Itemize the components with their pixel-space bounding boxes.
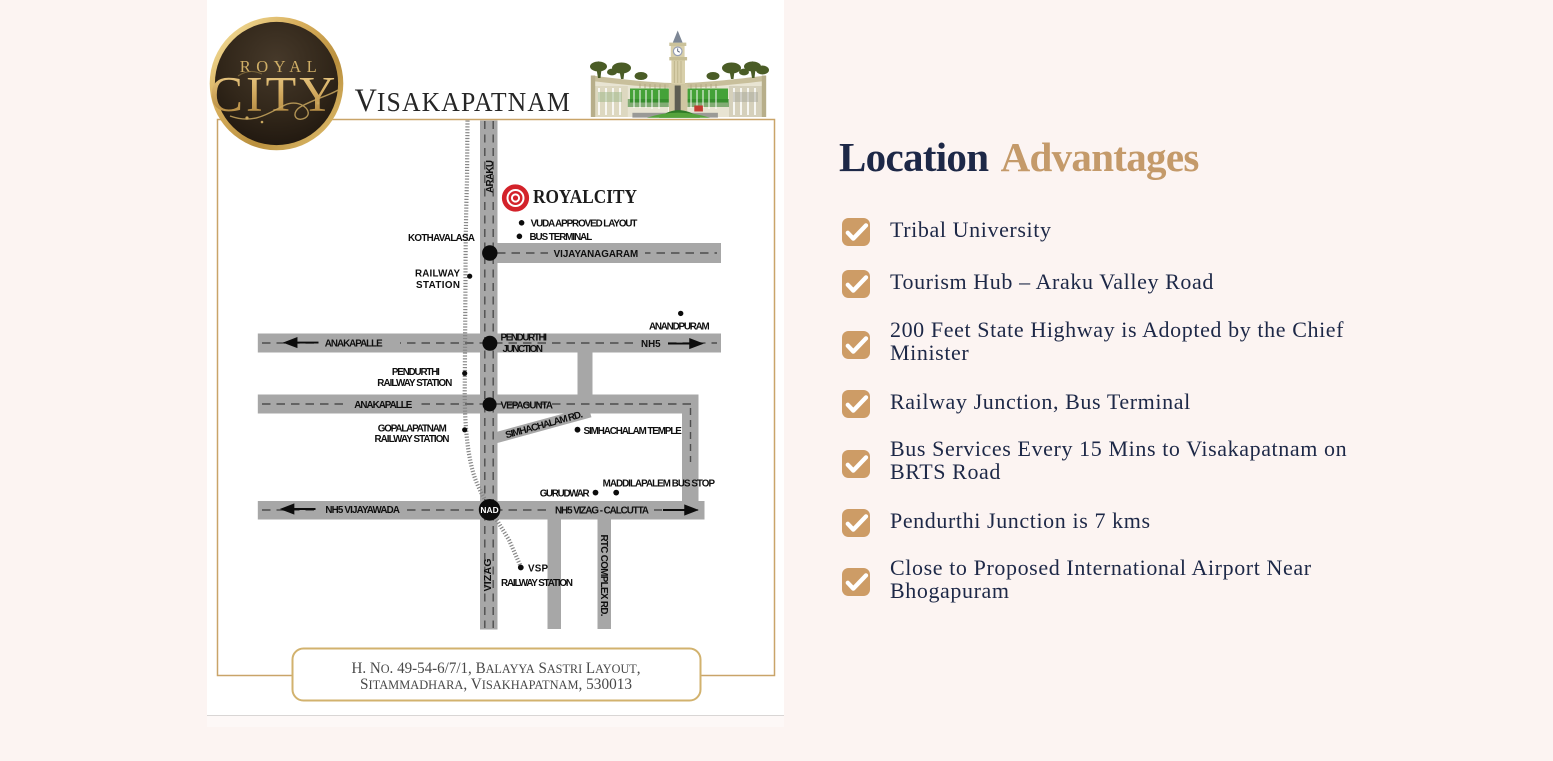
svg-text:VUDA APPROVED LAYOUT: VUDA APPROVED LAYOUT: [531, 219, 638, 230]
svg-text:H. NO. 49-54-6/7/1, BALAYYA SA: H. NO. 49-54-6/7/1, BALAYYA SASTRI LAYOU…: [352, 660, 641, 677]
svg-text:ANAKAPALLE: ANAKAPALLE: [325, 339, 383, 350]
svg-text:ANAKAPALLE: ANAKAPALLE: [354, 400, 412, 411]
svg-text:SIMHACHALAM TEMPLE: SIMHACHALAM TEMPLE: [584, 426, 683, 437]
svg-text:NH5 VIZAG - CALCUTTA: NH5 VIZAG - CALCUTTA: [555, 506, 649, 517]
svg-text:VEPAGUNTA: VEPAGUNTA: [501, 401, 554, 412]
svg-text:ANANDPURAM: ANANDPURAM: [649, 322, 710, 333]
svg-text:RAILWAY STATION: RAILWAY STATION: [501, 578, 573, 589]
svg-text:ROYALCITY: ROYALCITY: [533, 186, 637, 208]
svg-text:KOTHAVALASA: KOTHAVALASA: [408, 233, 475, 244]
svg-text:NH5: NH5: [641, 339, 661, 350]
svg-text:BUS TERMINAL: BUS TERMINAL: [530, 232, 593, 243]
svg-text:STATION: STATION: [416, 280, 460, 291]
svg-text:VIZAG: VIZAG: [482, 559, 494, 592]
svg-text:VISAKAPATNAM: VISAKAPATNAM: [355, 83, 571, 119]
svg-text:RTC COMPLEX RD.: RTC COMPLEX RD.: [598, 535, 609, 617]
svg-text:NAD: NAD: [480, 505, 498, 515]
svg-text:SITAMMADHARA, VISAKHAPATNAM, 5: SITAMMADHARA, VISAKHAPATNAM, 530013: [360, 676, 632, 693]
svg-text:RAILWAY: RAILWAY: [415, 269, 460, 280]
svg-text:PENDURTHI: PENDURTHI: [392, 367, 440, 378]
svg-text:NH5 VIJAYAWADA: NH5 VIJAYAWADA: [325, 505, 400, 516]
svg-text:SIMHACHALAM RD.: SIMHACHALAM RD.: [504, 409, 584, 441]
svg-text:VIJAYANAGARAM: VIJAYANAGARAM: [554, 249, 639, 260]
svg-text:CITY: CITY: [210, 66, 339, 122]
svg-text:GURUDWAR: GURUDWAR: [540, 488, 590, 499]
svg-text:PENDURTHI: PENDURTHI: [501, 333, 548, 344]
svg-text:RAILWAY STATION: RAILWAY STATION: [377, 378, 452, 389]
svg-text:RAILWAY STATION: RAILWAY STATION: [375, 434, 450, 445]
svg-text:JUNCTION: JUNCTION: [503, 344, 544, 355]
svg-text:VSP: VSP: [528, 564, 548, 575]
svg-text:ARAKU: ARAKU: [485, 160, 496, 193]
svg-text:MADDILAPALEM BUS STOP: MADDILAPALEM BUS STOP: [603, 479, 716, 490]
